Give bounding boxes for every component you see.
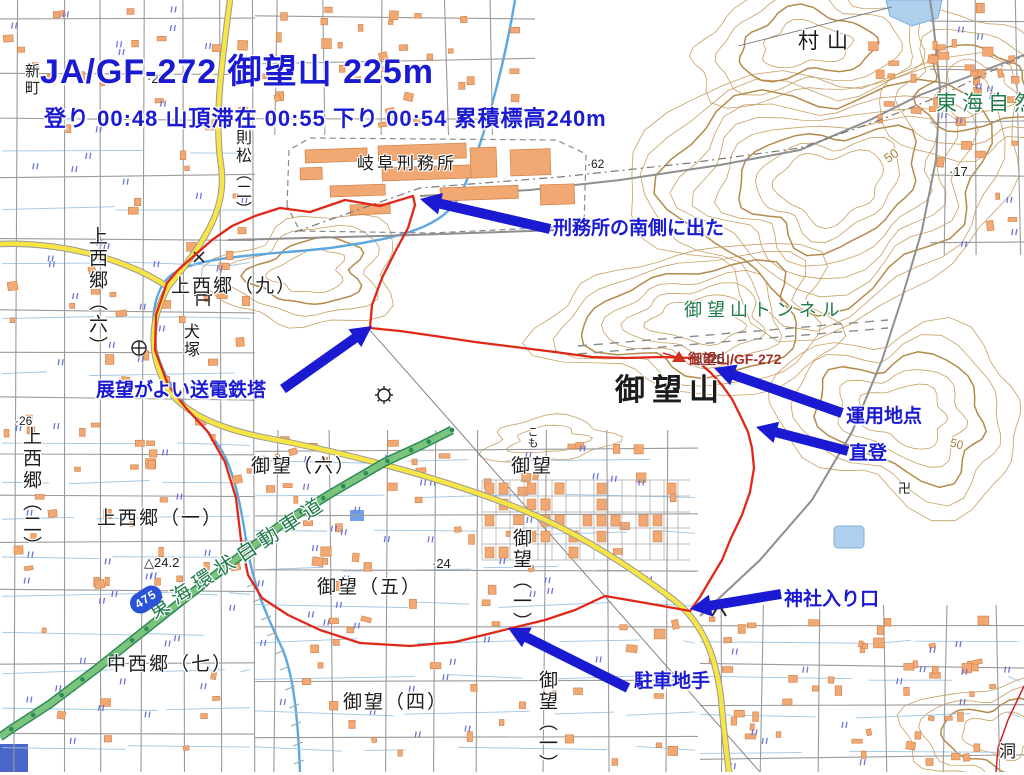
map-label-gomo-5: 御望（五）: [317, 572, 422, 599]
map-label-kaminishigo-1: 上西郷（一）: [97, 503, 223, 530]
summit-sota-label: 御望山/GF-272: [688, 349, 781, 369]
map-label-shinmachi: 新町: [21, 63, 42, 97]
spot-elevation-24: ·24: [432, 556, 451, 571]
spot-elevation-26: ·26: [15, 414, 32, 428]
arrow-operating-point: [714, 365, 844, 418]
temple-swastika-icon: 卍: [898, 478, 911, 497]
annotation-parking: 駐車地手: [634, 666, 710, 693]
map-label-gomo-6: 御望（六）: [251, 451, 356, 478]
annotation-shrine-entrance: 神社入り口: [784, 584, 879, 611]
map-label-inuzuka: 犬塚: [177, 323, 201, 359]
map-label-komo: こも: [524, 426, 540, 448]
map-label-hora: 洞: [999, 737, 1016, 762]
map-label-gomo: 御望: [511, 451, 553, 478]
map-label-nakanishigo-7: 中西郷（七）: [107, 649, 233, 676]
spot-elevation-62: ·62: [587, 157, 604, 171]
triangulation-24-2: △24.2: [144, 555, 179, 571]
map-label-kaminishigo-6: 上西郷（六）: [83, 226, 110, 358]
map-label-tokai-trail: 東海自然歩道: [936, 87, 1024, 117]
map-label-gomo-1a: 御望（一）: [507, 528, 534, 633]
page-title: JA/GF-272 御望山 225m: [40, 44, 434, 93]
hike-stats: 登り 00:48 山頂滞在 00:55 下り 00:54 累積標高240m: [44, 101, 607, 133]
arrow-parking: [508, 628, 630, 693]
map-label-norimatsu-2: 則松（二）: [229, 129, 253, 219]
topo-map: 村山 東海自然歩道 岐阜刑務所 上西郷（九） 御望山トンネル 御望山 上西郷（一…: [0, 0, 1024, 772]
annotation-pylon-view: 展望がよい送電鉄塔: [96, 375, 266, 402]
arrow-shrine-entrance: [690, 589, 782, 616]
map-label-murayama: 村山: [798, 25, 856, 55]
map-label-kaminishigo-2: 上西郷（二）: [17, 426, 44, 558]
map-label-tunnel: 御望山トンネル: [684, 296, 845, 322]
map-label-mountain: 御望山: [615, 365, 726, 409]
map-screenshot: { "header": { "title": "JA/GF-272 御望山 22…: [0, 0, 1024, 772]
map-label-gifu-prison: 岐阜刑務所: [357, 149, 457, 174]
map-label-gomo-4: 御望（四）: [343, 687, 448, 714]
annotation-operating-point: 運用地点: [846, 401, 922, 428]
arrow-pylon-view: [280, 326, 372, 393]
map-label-gomo-1b: 御望（一）: [533, 670, 560, 775]
annotation-prison-exit: 刑務所の南側に出た: [553, 213, 724, 240]
map-label-kaminishigo-9: 上西郷（九）: [171, 271, 297, 298]
spot-elevation-17: ·17: [949, 164, 968, 179]
annotation-direct-climb: 直登: [849, 438, 887, 465]
